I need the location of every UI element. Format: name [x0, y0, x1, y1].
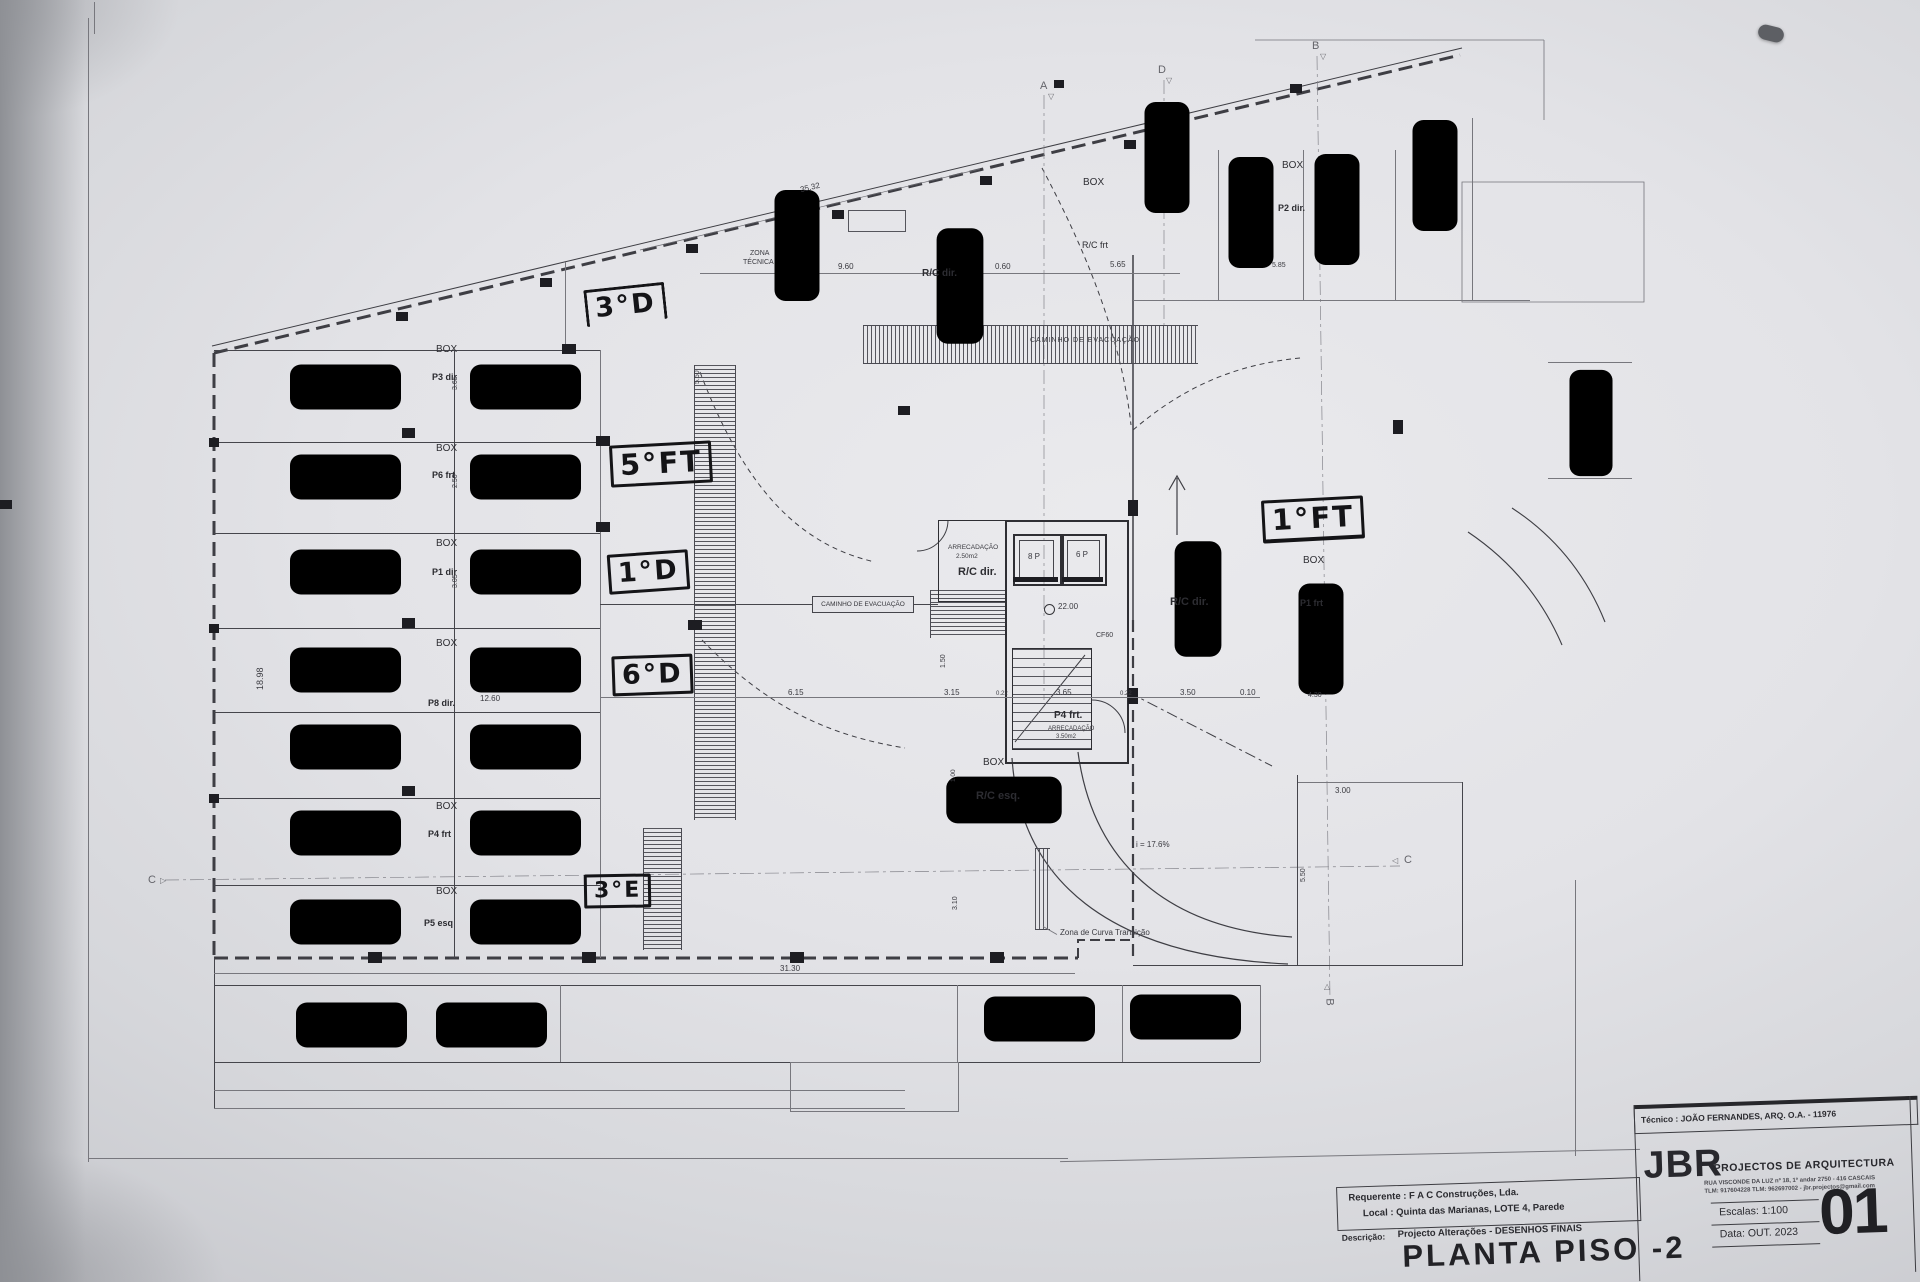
- stall-divider: [1303, 150, 1304, 300]
- dimension-label: 3.00: [1335, 786, 1351, 795]
- stall-owner-label: P2 dir.: [1278, 203, 1305, 213]
- wall-marker: [1393, 420, 1403, 434]
- car-icon: [468, 452, 583, 502]
- stall-owner-label: R/C esq.: [976, 790, 1020, 802]
- evacuation-path-hatch: [863, 325, 1198, 364]
- wall-marker: [990, 952, 1004, 963]
- car-icon: [294, 1000, 409, 1050]
- handwritten-annotation: 1°D: [607, 549, 690, 595]
- right-wall: [1297, 775, 1298, 965]
- dimension-label: 5.50: [694, 370, 701, 384]
- level-marker-icon: [1044, 604, 1055, 615]
- date-value: OUT. 2023: [1748, 1226, 1799, 1240]
- dimension-label: 4.30: [1308, 692, 1322, 699]
- box-label: BOX: [436, 538, 457, 549]
- box-label: BOX: [436, 801, 457, 812]
- stall-line: [1548, 478, 1632, 479]
- wall-marker: [582, 952, 596, 963]
- wall-marker: [368, 952, 382, 963]
- row-line: [214, 350, 600, 351]
- stall-label: P4 frt: [428, 829, 451, 839]
- car-icon: [288, 452, 403, 502]
- car-icon: [1566, 368, 1616, 478]
- car-icon: [434, 1000, 549, 1050]
- handwritten-annotation: 1°FT: [1261, 495, 1365, 544]
- section-marker: B: [1312, 40, 1319, 52]
- car-icon: [772, 188, 822, 303]
- car-icon: [468, 362, 583, 412]
- section-marker: D: [1158, 64, 1166, 76]
- car-icon: [288, 362, 403, 412]
- stall-owner-label: R/C frt: [1082, 240, 1108, 250]
- zona-tecnica-label: TÉCNICA: [743, 259, 774, 266]
- section-marker: A: [1040, 80, 1047, 92]
- dim-line: [214, 973, 1075, 974]
- box-label: BOX: [436, 638, 457, 649]
- elevator-capacity: 8 P: [1028, 552, 1040, 561]
- wall-marker: [1290, 84, 1302, 93]
- car-icon: [288, 897, 403, 947]
- cell-divider: [1711, 1199, 1819, 1204]
- car-icon: [1410, 118, 1460, 233]
- wall-marker: [209, 624, 219, 633]
- corridor-line: [600, 604, 812, 605]
- section-triangle-icon: ◁: [1392, 856, 1398, 865]
- wall-marker: [0, 500, 12, 509]
- ramp-hatch: [694, 365, 736, 820]
- scale-label: Escalas:: [1719, 1205, 1759, 1218]
- wall-marker: [1128, 500, 1138, 516]
- dimension-label: 2.50: [452, 474, 459, 488]
- stall-line: [1133, 300, 1530, 301]
- section-triangle-icon: ▽: [1320, 52, 1326, 61]
- stall-divider: [1218, 150, 1219, 300]
- car-icon: [468, 808, 583, 858]
- rooflight: [848, 210, 906, 232]
- row-line: [214, 628, 600, 629]
- dimension-label: 18.98: [255, 667, 265, 690]
- road-detail: [790, 1062, 959, 1112]
- stall-owner-label: P4 frt.: [1054, 710, 1082, 721]
- dimension-label: 0.22: [1120, 691, 1132, 697]
- wall-marker: [1054, 80, 1064, 88]
- stall-divider: [1122, 985, 1123, 1062]
- row-line: [214, 533, 600, 534]
- box-label: BOX: [1303, 555, 1324, 566]
- handwritten-annotation: 6°D: [611, 654, 693, 697]
- wall-marker: [686, 244, 698, 253]
- stall-divider: [1260, 985, 1261, 1062]
- wall-marker: [832, 210, 844, 219]
- storage-area-label: 2.50m2: [956, 553, 978, 560]
- dimension-label: 12.60: [480, 694, 500, 703]
- storage-room: [938, 520, 1006, 602]
- title-block: Técnico : JOÃO FERNANDES, ARQ. O.A. - 11…: [1297, 1070, 1920, 1282]
- elevator-capacity: 6 P: [1076, 550, 1088, 559]
- stall-label: P8 dir.: [428, 698, 455, 708]
- section-triangle-icon: ▽: [1048, 92, 1054, 101]
- wall-marker: [1124, 140, 1136, 149]
- zona-tecnica-wall: [565, 262, 566, 350]
- car-icon: [1312, 152, 1362, 267]
- stall-divider: [1472, 118, 1473, 300]
- corridor-line: [912, 604, 938, 605]
- scanned-floor-plan-photo: CAMINHO DE EVACUAÇÃO CAMINHO DE EVACUAÇÃ…: [0, 0, 1920, 1282]
- storage-label: ARRECADAÇÃO: [948, 544, 998, 551]
- handwritten-annotation: 5°FT: [609, 440, 713, 488]
- street-edge: [214, 958, 215, 1108]
- date-field: Data: OUT. 2023: [1720, 1226, 1799, 1241]
- car-icon: [468, 645, 583, 695]
- cell-divider: [1712, 1221, 1820, 1226]
- dimension-label: 6.15: [788, 688, 804, 697]
- box-label: BOX: [436, 886, 457, 897]
- elevator-car: [1067, 540, 1100, 578]
- stall-divider: [560, 985, 561, 1062]
- section-marker: B: [1324, 998, 1336, 1005]
- stall-divider: [1395, 150, 1396, 300]
- car-icon: [288, 645, 403, 695]
- transition-hatch: [1035, 848, 1050, 930]
- dimension-label: 3.10: [952, 896, 959, 910]
- description-label: Descrição:: [1342, 1231, 1386, 1242]
- unit-label: R/C dir.: [958, 566, 997, 578]
- car-icon: [468, 722, 583, 772]
- dimension-label: 9.60: [838, 262, 854, 271]
- level-label: 22.00: [1058, 602, 1078, 611]
- dimension-label: 3.05: [452, 574, 459, 588]
- stall-divider: [454, 350, 455, 958]
- dimension-label: 3.15: [944, 688, 960, 697]
- transition-zone-label: Zona de Curva Transição: [1060, 928, 1150, 937]
- scale-value: 1:100: [1761, 1204, 1788, 1217]
- car-icon: [1226, 155, 1276, 270]
- stairs: [1012, 648, 1092, 750]
- dimension-label: 3.50: [1180, 688, 1196, 697]
- cell-divider: [1712, 1243, 1820, 1248]
- wall-marker: [402, 428, 415, 438]
- wall-marker: [688, 620, 702, 630]
- wall-marker: [402, 618, 415, 628]
- stall-line: [1548, 362, 1632, 363]
- dimension-label: 0.60: [995, 262, 1011, 271]
- technician-field: Técnico : JOÃO FERNANDES, ARQ. O.A. - 11…: [1633, 1096, 1918, 1134]
- stall-label: P5 esq: [424, 918, 453, 928]
- storage-label: ARRECADAÇÃO: [1048, 726, 1094, 732]
- car-icon: [1142, 100, 1192, 215]
- dimension-label: 5.50: [1300, 868, 1307, 882]
- dimension-label: 0.10: [1240, 688, 1256, 697]
- date-label: Data:: [1720, 1228, 1745, 1241]
- stall-divider: [957, 985, 958, 1062]
- dim-line: [600, 697, 1260, 698]
- car-icon: [982, 994, 1097, 1044]
- dimension-label: 1.00: [950, 769, 957, 782]
- car-icon: [468, 547, 583, 597]
- evacuation-route-label: CAMINHO DE EVACUAÇÃO: [1030, 337, 1140, 344]
- dimension-label: 3.65: [1056, 688, 1072, 697]
- section-triangle-icon: ▷: [160, 876, 166, 885]
- dimension-label: 3.65: [452, 376, 459, 390]
- wall-marker: [396, 312, 408, 321]
- wall-marker: [209, 438, 219, 447]
- row-line: [214, 885, 600, 886]
- firm-name: PROJECTOS DE ARQUITECTURA: [1713, 1157, 1894, 1175]
- wall-marker: [596, 522, 610, 532]
- wall-marker: [402, 786, 415, 796]
- section-marker: C: [148, 874, 156, 886]
- row-line: [214, 712, 600, 713]
- elevator-sill: [1013, 577, 1058, 582]
- box-label: BOX: [436, 443, 457, 454]
- stall-owner-label: R/C dir.: [1170, 596, 1209, 608]
- wall-marker: [980, 176, 992, 185]
- section-triangle-icon: ▽: [1166, 76, 1172, 85]
- wall-marker: [898, 406, 910, 415]
- elevator-sill: [1062, 577, 1103, 582]
- dimension-label: 31.30: [780, 964, 800, 973]
- scale-field: Escalas: 1:100: [1719, 1204, 1788, 1218]
- stall-owner-label: R/C dir.: [922, 268, 957, 279]
- right-wall: [1133, 965, 1463, 966]
- box-label: BOX: [436, 344, 457, 355]
- right-wall: [1462, 782, 1463, 965]
- dimension-label: 5.65: [1110, 260, 1126, 269]
- wall-marker: [790, 952, 804, 963]
- evacuation-route-label: CAMINHO DE EVACUAÇÃO: [812, 596, 914, 613]
- section-marker: C: [1404, 854, 1412, 866]
- street-line: [214, 985, 1260, 986]
- box-label: BOX: [983, 757, 1004, 768]
- box-label: BOX: [1282, 160, 1303, 171]
- handwritten-annotation: 3°E: [584, 873, 652, 908]
- box-label: BOX: [1083, 177, 1104, 188]
- street-line: [214, 1062, 1260, 1063]
- stall-owner-label: P1 frt: [1300, 598, 1323, 608]
- dimension-label: 1.50: [940, 654, 947, 668]
- storage-area-label: 3.50m2: [1056, 734, 1076, 740]
- zona-tecnica-label: ZONA: [750, 250, 769, 257]
- row-line: [214, 442, 600, 443]
- row-line: [214, 798, 600, 799]
- car-icon: [288, 722, 403, 772]
- door-label: CF60: [1096, 632, 1113, 639]
- car-icon: [1128, 992, 1243, 1042]
- wall-marker: [540, 278, 552, 287]
- car-icon: [288, 808, 403, 858]
- ramp-slope-label: i = 17.6%: [1136, 840, 1170, 849]
- car-icon: [288, 547, 403, 597]
- car-icon: [934, 226, 986, 346]
- dim-line: [1297, 782, 1462, 783]
- section-triangle-icon: △: [1324, 982, 1330, 991]
- car-icon: [468, 897, 583, 947]
- wall-marker: [596, 436, 610, 446]
- dimension-label: 0.22: [996, 691, 1008, 697]
- wall-marker: [209, 794, 219, 803]
- dimension-label: 5.85: [1272, 262, 1286, 269]
- sheet-number: 01: [1818, 1173, 1888, 1249]
- wall-marker: [562, 344, 576, 354]
